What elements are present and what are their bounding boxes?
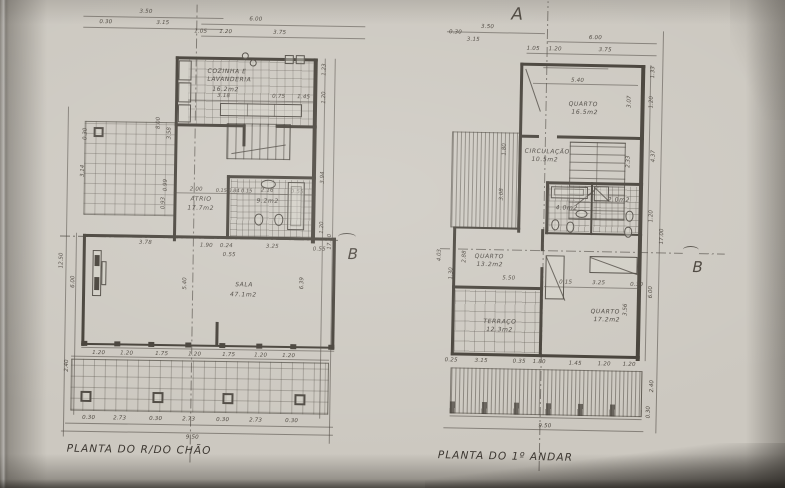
dim-label: 1.05 [194, 29, 207, 35]
dim-label: 4.03 [436, 242, 442, 268]
dim-label: 1.80 [501, 136, 507, 162]
dim-label: 3.14 [80, 158, 86, 184]
dim-label: 2.00 [190, 187, 203, 193]
dim-label: 3.25 [592, 280, 605, 286]
floor-plan-first: A B 3.50 0.30 3.15 6.00 1.05 1.20 3.75 5… [430, 0, 744, 483]
window-line [543, 67, 608, 69]
dim-label: 3.18 [217, 93, 230, 99]
dim-label: 2.73 [249, 417, 262, 423]
dim-label: 1.80 [533, 359, 546, 365]
column [222, 393, 233, 404]
dim-label: 2.40 [649, 373, 655, 399]
section-line-break [683, 246, 699, 254]
dim-label: 1.30 [448, 260, 454, 286]
dim-label: 1.90 [200, 243, 213, 249]
dim-label: 1.20 [219, 29, 232, 35]
dim-label: 6.39 [299, 270, 305, 296]
dim-label: 1.20 [598, 361, 611, 367]
dim-label: 1.45 [297, 94, 310, 100]
dim-label: 2.73 [113, 415, 126, 421]
fireplace-ledge [101, 261, 106, 285]
room-label: CIRCULAÇÃO [525, 148, 570, 156]
section-line-b [699, 253, 725, 254]
stove-burner [296, 55, 305, 64]
appliance [178, 104, 191, 122]
fireplace-block [95, 255, 100, 266]
dim-label: 0.35 [513, 359, 526, 365]
dim-line [547, 41, 657, 44]
room-label: SALA [235, 281, 253, 288]
dim-label: 0.30 [285, 418, 298, 424]
dim-label: 17.00 [659, 223, 665, 249]
dim-label: 1.33 [650, 59, 656, 85]
dim-label: 3.56 [622, 297, 628, 323]
dim-label: 0.93 [160, 190, 166, 216]
dim-label: 0.30 [99, 19, 112, 25]
room-area: 2.0m2 [608, 196, 630, 203]
wall-stub [215, 322, 218, 346]
pier [114, 341, 120, 346]
door-swing [525, 69, 541, 112]
dim-label: 1.20 [321, 85, 327, 111]
wall [81, 234, 86, 346]
wall [519, 135, 539, 138]
wall [557, 135, 644, 140]
dim-label: 6.00 [589, 35, 602, 41]
dim-label: 1.20 [648, 89, 654, 115]
dim-label: 3.08 [499, 181, 505, 207]
room-area: 16.5m2 [571, 109, 598, 117]
plan-title: PLANTA DO R/DO CHÃO [67, 443, 212, 457]
dim-label: 3.50 [139, 9, 152, 15]
section-line-break [338, 233, 356, 241]
dim-label: 0.30 [82, 415, 95, 421]
stove-burner [285, 55, 294, 64]
section-marker-b: B [692, 258, 703, 276]
roof-hatch [450, 131, 520, 228]
dim-label: 0.30 [630, 282, 643, 288]
wall [541, 229, 544, 251]
dim-label: 1.23 [321, 57, 327, 83]
room-label: LAVANDERIA [207, 76, 251, 84]
room-label: QUARTO [569, 101, 599, 109]
terrace-tiles [70, 359, 329, 415]
sink-basin [250, 59, 257, 66]
section-marker-b: B [348, 245, 359, 263]
dim-label: 0.55 [313, 246, 326, 252]
column [294, 394, 305, 405]
dim-label: 3.78 [139, 240, 152, 246]
room-area: 17.2m2 [593, 316, 620, 324]
dim-label: 2.40 [64, 353, 70, 379]
dim-line [201, 36, 365, 40]
dim-label: 5.50 [502, 275, 515, 281]
pier [290, 344, 296, 349]
room-label: ATRIO [191, 196, 212, 203]
dim-label: 0.30 [449, 29, 462, 35]
dim-label: 1.05 [527, 46, 540, 52]
dim-label: 1.45 [569, 361, 582, 367]
room-area: 10.5m2 [531, 156, 558, 164]
dim-label: 3.50 [481, 24, 494, 30]
room-label: TERRAÇO [483, 318, 516, 326]
sink-basin [242, 52, 249, 59]
paper-top-right-shade [730, 0, 785, 120]
dim-label: 3.58 [166, 120, 172, 146]
dim-label: 3.15 [475, 358, 488, 364]
dim-label: 0.30 [645, 399, 651, 425]
room-label: COZINHA E [208, 68, 247, 76]
photo-of-blueprint: B 3.50 0.30 3.15 6.00 1.05 1.20 3.75 COZ… [0, 0, 785, 488]
room-label: QUARTO [591, 308, 621, 316]
bidet [624, 227, 632, 238]
dim-label: 1.20 [623, 362, 636, 368]
dim-label: 1.20 [319, 215, 325, 241]
shower-tray [290, 186, 302, 226]
dim-label: 3.07 [626, 89, 632, 115]
dim-label: 3.94 [320, 165, 326, 191]
dim-label: 5.40 [182, 270, 188, 296]
dim-label: 0.30 [216, 417, 229, 423]
dim-line [201, 24, 365, 28]
room-area: 9.2m2 [256, 198, 278, 205]
dim-label: 0.25 [445, 357, 458, 363]
dim-label: 8.00 [156, 110, 162, 136]
room-label: QUARTO [475, 253, 505, 261]
dim-label: 0.15 [559, 279, 572, 285]
dim-label: 3.25 [266, 244, 279, 250]
kitchen-counter [220, 103, 302, 117]
floor-plan-ground: B 3.50 0.30 3.15 6.00 1.05 1.20 3.75 COZ… [56, 2, 385, 469]
fireplace-block [94, 277, 99, 290]
dim-label: 3.15 [156, 20, 169, 26]
dim-label: 4.37 [650, 143, 656, 169]
stairs [226, 123, 291, 160]
room-area: 13.2m2 [476, 261, 503, 269]
dim-label: 3.75 [273, 30, 286, 36]
dim-label: 6.00 [70, 269, 76, 295]
room-area: 47.1m2 [230, 291, 257, 298]
room-area: 4.0m2 [556, 204, 578, 211]
pier [185, 342, 191, 347]
dim-label: 6.00 [648, 279, 654, 305]
wall [453, 226, 520, 229]
dim-label: 9.50 [538, 423, 551, 429]
column [152, 392, 163, 403]
pier [148, 342, 154, 347]
dim-label: 2.33 [625, 149, 631, 175]
appliance [178, 60, 191, 80]
dim-label: 12.50 [58, 247, 64, 273]
dim-label: 0.55 [223, 252, 236, 258]
dim-line [533, 83, 638, 86]
dim-label: 6.00 [249, 16, 262, 22]
room-area: 12.3m2 [486, 326, 513, 334]
dim-label: 17.00 [327, 229, 333, 255]
dim-label: 0.30 [149, 416, 162, 422]
paper-fold-crease [0, 0, 9, 488]
pier [81, 341, 87, 346]
dim-label: 3.75 [599, 47, 612, 53]
bathtub-inner [554, 188, 584, 196]
dim-label: 1.20 [648, 203, 654, 229]
column [80, 391, 91, 402]
dim-label: 9.50 [186, 434, 199, 440]
room-area: 17.7m2 [187, 204, 214, 211]
counter-divider [274, 104, 275, 117]
dim-label: 1.20 [549, 46, 562, 52]
dim-label: 0.24 [220, 243, 233, 249]
washbasin [261, 180, 276, 189]
balustrade-posts [450, 401, 642, 417]
pier [256, 344, 262, 349]
column [94, 127, 104, 137]
pier [219, 343, 225, 348]
dim-label: 5.40 [571, 78, 584, 84]
counter-divider [247, 103, 248, 116]
dim-label: 3.15 [467, 37, 480, 43]
dim-label: 0.30 [82, 121, 88, 147]
dim-label: 0.75 [272, 94, 285, 100]
paper-bottom-edge [0, 479, 785, 488]
dim-label: 2.73 [182, 416, 195, 422]
dim-label: 2.88 [461, 244, 467, 270]
section-marker-a: A [511, 4, 523, 24]
